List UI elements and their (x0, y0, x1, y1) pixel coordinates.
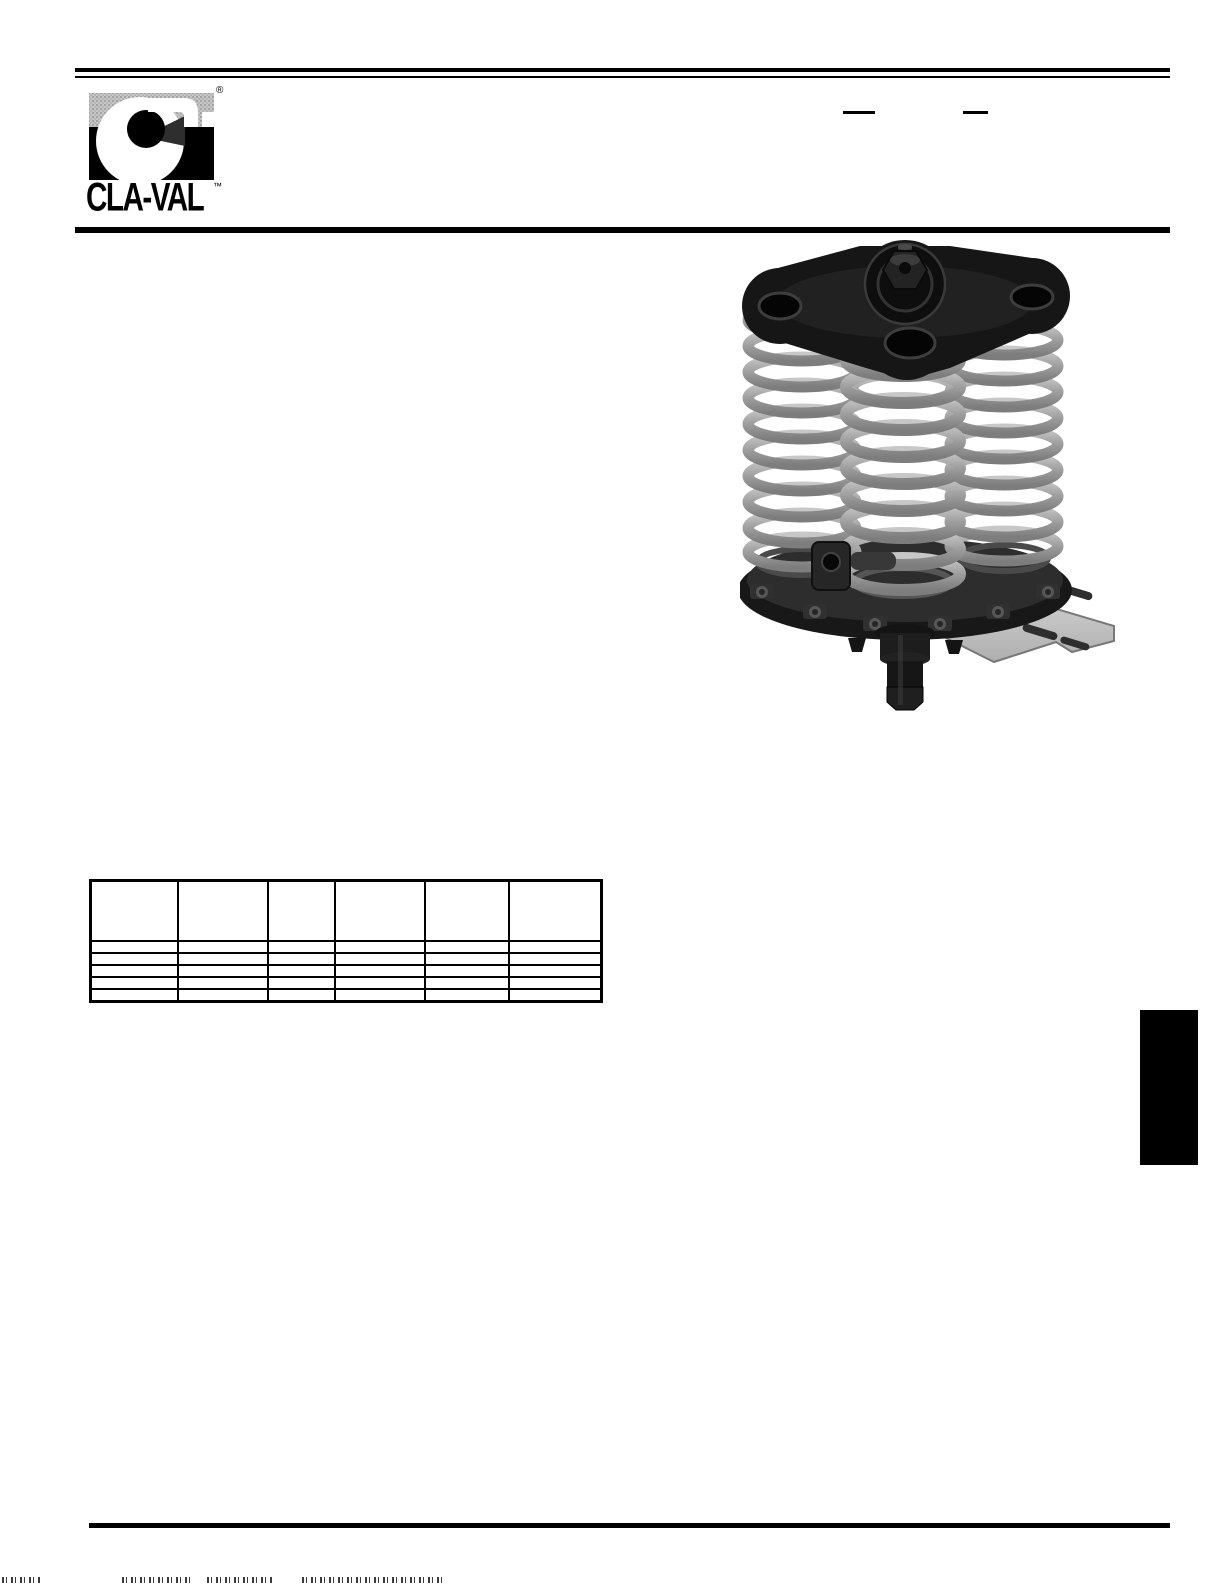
spec-table-cell (178, 953, 268, 965)
header-rule (75, 227, 1170, 233)
clipped-footer-text (2, 1577, 452, 1585)
lower-stem (875, 624, 935, 710)
spec-table-cell (335, 989, 425, 1002)
spec-table-row (91, 977, 602, 989)
spec-table-header-cell (335, 881, 425, 942)
spec-table-cell (91, 989, 178, 1002)
spec-table-cell (268, 965, 335, 977)
document-page: ® CLA-VAL ™ (0, 0, 1225, 1585)
spec-table-cell (509, 977, 602, 989)
spec-table-cell (425, 989, 509, 1002)
spec-table-cell (91, 941, 178, 953)
spec-table-cell (509, 989, 602, 1002)
spec-table-row (91, 941, 602, 953)
spec-table-cell (509, 941, 602, 953)
spec-table-cell (178, 977, 268, 989)
top-rule-thin (75, 76, 1170, 78)
spec-table-cell (268, 953, 335, 965)
spec-table-cell (335, 941, 425, 953)
spring-assembly-illustration (740, 240, 1120, 720)
spec-table-header-cell (268, 881, 335, 942)
brand-wordmark: CLA-VAL (86, 182, 215, 217)
spec-table-cell (268, 941, 335, 953)
section-tab (1140, 1010, 1198, 1165)
spec-table-cell (91, 953, 178, 965)
spec-table-cell (509, 953, 602, 965)
spec-table-cell (91, 977, 178, 989)
spec-table-header-cell (425, 881, 509, 942)
spec-table-row (91, 965, 602, 977)
spec-table-cell (178, 989, 268, 1002)
spec-table-header-cell (178, 881, 268, 942)
spec-table-cell (268, 977, 335, 989)
spec-table-cell (178, 965, 268, 977)
spec-table-cell (509, 965, 602, 977)
spec-table-cell (425, 977, 509, 989)
registered-symbol: ® (216, 86, 223, 96)
cla-val-logo-mark (88, 88, 218, 183)
spec-table (89, 879, 603, 1003)
top-rule-thick (75, 68, 1170, 72)
spec-table-row (91, 989, 602, 1002)
spec-table-cell (91, 965, 178, 977)
spec-table-body (91, 941, 602, 1002)
spec-table-header-cell (91, 881, 178, 942)
trademark-symbol: ™ (213, 182, 222, 191)
spec-table-cell (335, 953, 425, 965)
spec-table-cell (335, 977, 425, 989)
spec-table-cell (425, 965, 509, 977)
spec-table-cell (425, 941, 509, 953)
spec-table-header-row (91, 881, 602, 942)
spec-table-cell (335, 965, 425, 977)
spec-table-header-cell (509, 881, 602, 942)
model-number-blank-line-1 (843, 111, 875, 114)
spec-table-cell (425, 953, 509, 965)
model-number-blank-line-2 (963, 111, 988, 114)
spec-table-cell (268, 989, 335, 1002)
spec-table-row (91, 953, 602, 965)
footer-rule (89, 1523, 1170, 1528)
spec-table-cell (178, 941, 268, 953)
